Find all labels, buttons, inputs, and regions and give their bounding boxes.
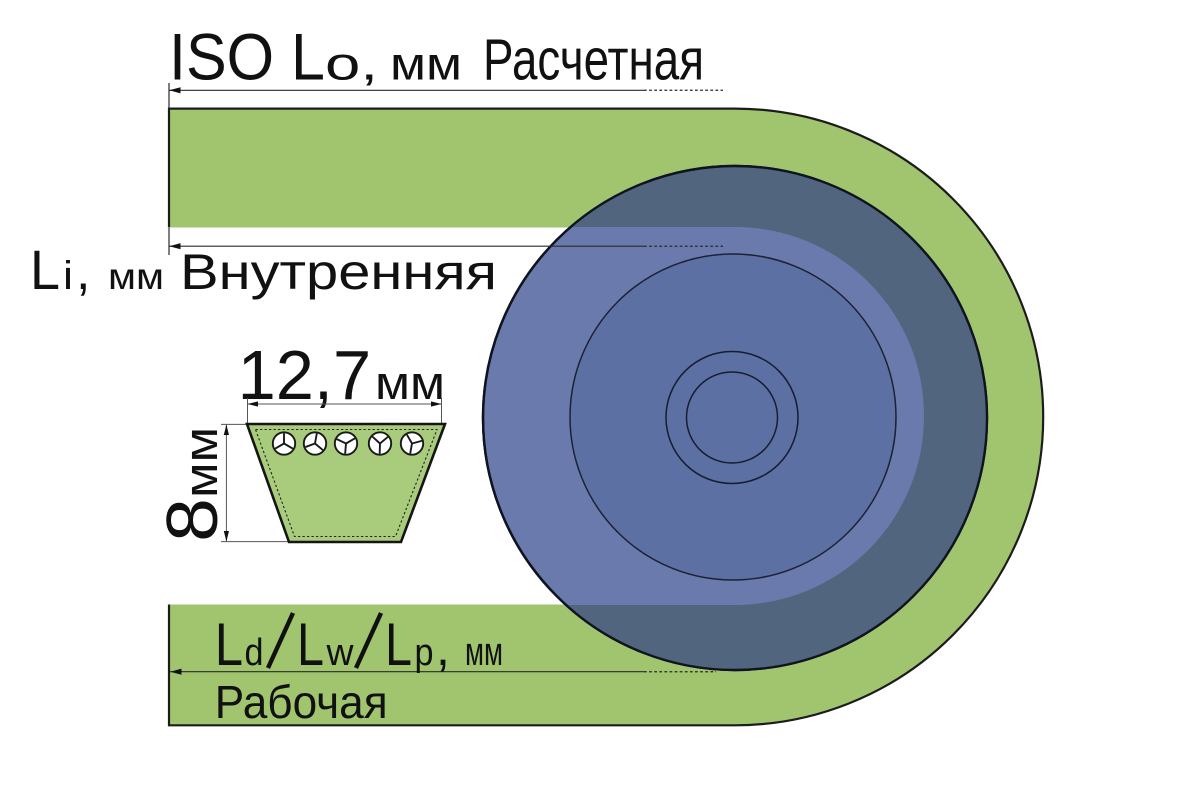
svg-text:,: ,	[436, 620, 450, 676]
svg-text:Внутренняя: Внутренняя	[180, 244, 497, 300]
svg-text:L: L	[215, 611, 243, 678]
svg-text:d: d	[245, 632, 264, 674]
svg-text:,: ,	[76, 243, 90, 301]
svg-text:мм: мм	[108, 256, 164, 297]
svg-text:ISO L: ISO L	[169, 20, 325, 94]
svg-text:Рабочая: Рабочая	[215, 676, 388, 728]
svg-text:мм: мм	[465, 630, 503, 674]
svg-text:L: L	[297, 611, 324, 678]
svg-text:o,: o,	[325, 38, 378, 90]
svg-text:мм: мм	[390, 38, 462, 90]
svg-text:w: w	[326, 632, 355, 674]
svg-text:Расчетная: Расчетная	[483, 28, 704, 93]
svg-text:мм: мм	[375, 356, 445, 409]
svg-text:L: L	[385, 611, 412, 678]
svg-text:p: p	[415, 632, 434, 674]
svg-text:L: L	[30, 238, 60, 301]
svg-text:i: i	[63, 254, 73, 298]
